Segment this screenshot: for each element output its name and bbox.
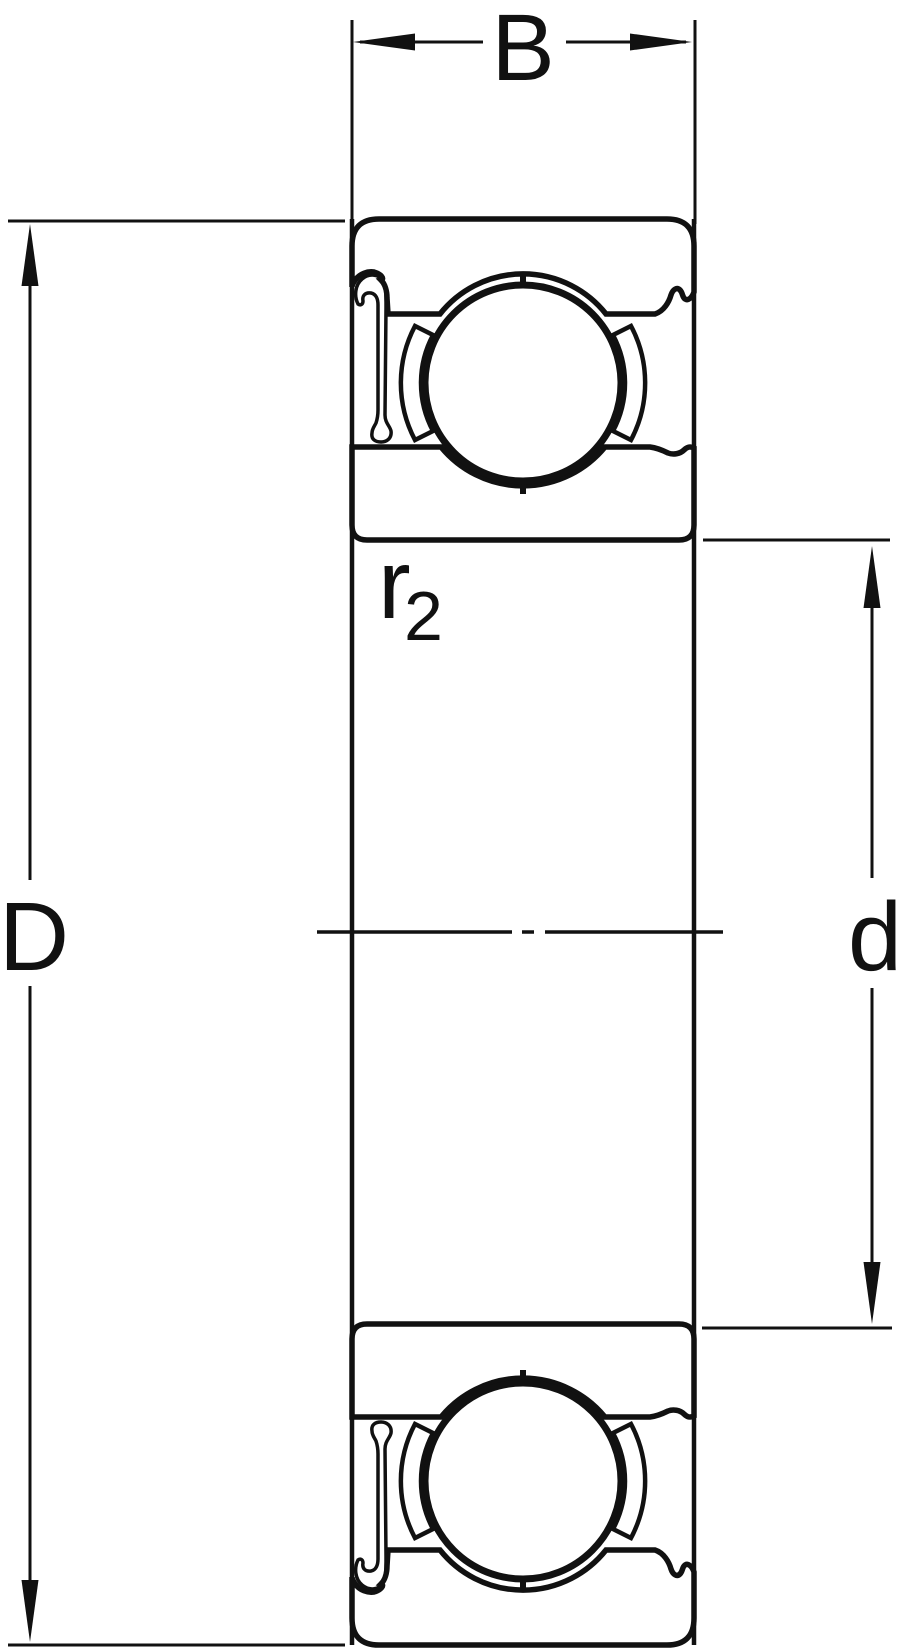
label-radius-subscript-2: 2: [404, 577, 443, 655]
label-width-B: B: [491, 0, 554, 101]
ball: [425, 285, 621, 481]
label-outer-diameter-D: D: [0, 882, 69, 991]
label-bore-diameter-d: d: [848, 882, 900, 991]
bearing-cross-section-drawing: B D d r 2: [0, 0, 900, 1650]
drawing-background: [0, 0, 900, 1650]
